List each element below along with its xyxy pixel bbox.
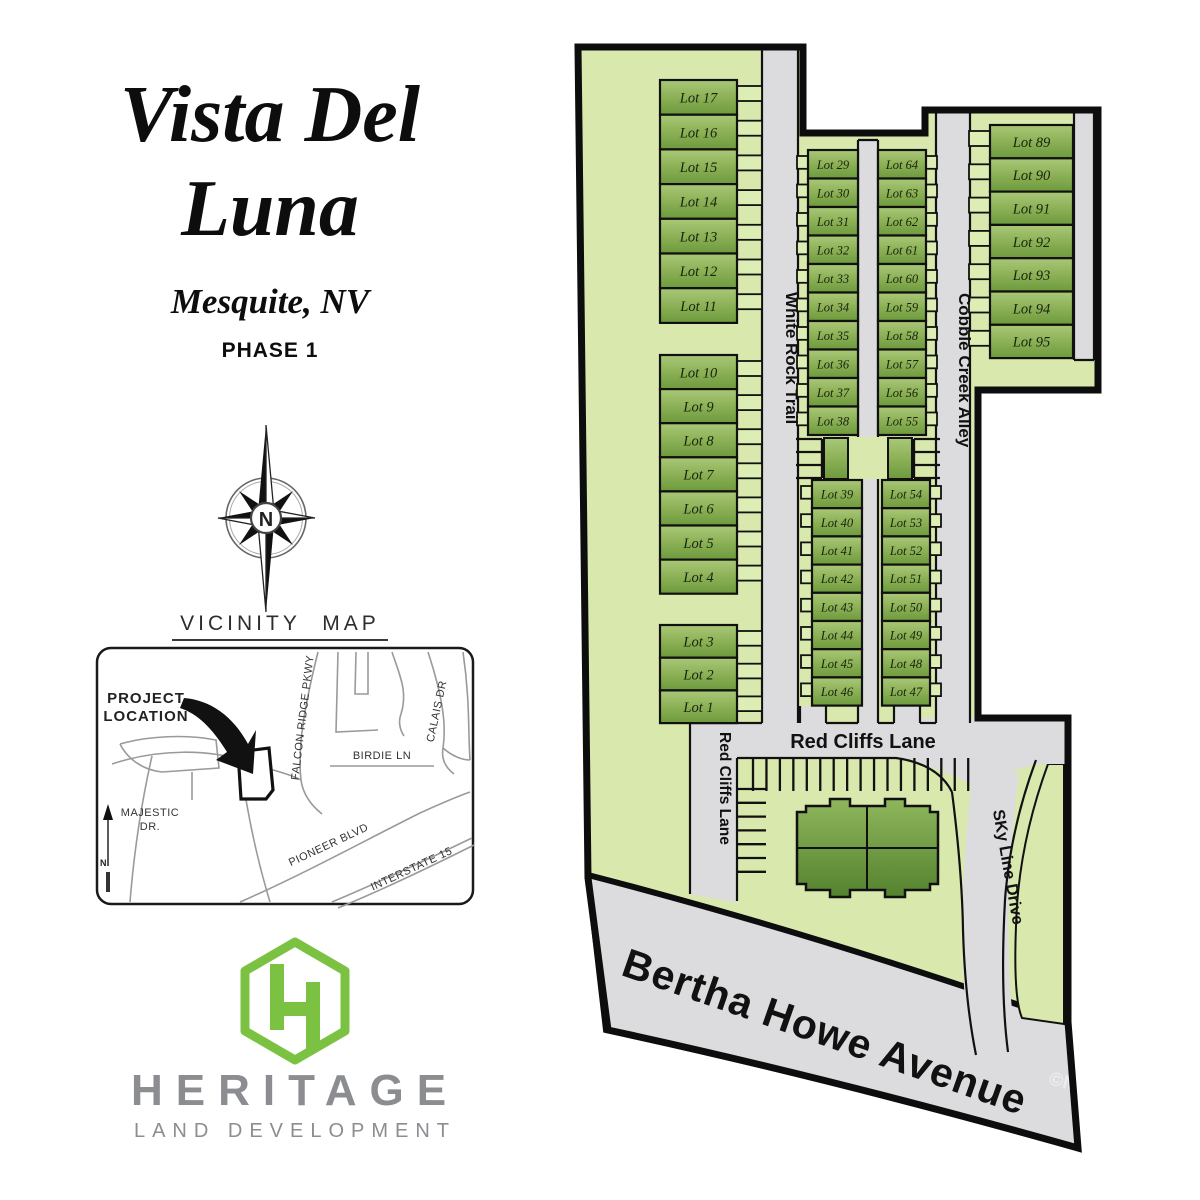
lot-17-driveway (737, 86, 762, 101)
lot-7-label: Lot 7 (682, 468, 714, 484)
vicinity-label-majestic-1: MAJESTIC (121, 807, 179, 819)
lot-58-label: Lot 58 (885, 329, 919, 343)
lot-12-driveway (737, 260, 762, 275)
lot-90-label: Lot 90 (1012, 168, 1051, 184)
lot-62-label: Lot 62 (885, 215, 918, 229)
lot-92-label: Lot 92 (1012, 235, 1050, 251)
lot-32-label: Lot 32 (816, 243, 849, 257)
page: Vista Del Luna Mesquite, NV PHASE 1 VICI… (0, 0, 1200, 1200)
stub-alley-a (800, 706, 826, 724)
lot-13-label: Lot 13 (679, 229, 717, 245)
lot-1-label: Lot 1 (682, 700, 713, 716)
lot-11-label: Lot 11 (679, 299, 716, 315)
lot-95-label: Lot 95 (1012, 335, 1050, 351)
site-plan: Lot 17Lot 16Lot 15Lot 14Lot 13Lot 12Lot … (578, 47, 1098, 1148)
lot-2-label: Lot 2 (682, 667, 713, 683)
lot-61-label: Lot 61 (885, 243, 918, 257)
lot-17-label: Lot 17 (679, 91, 718, 107)
lot-4-label: Lot 4 (682, 570, 713, 586)
lot-3-driveway (737, 631, 762, 646)
lot-11-driveway (737, 294, 762, 309)
lot-31-label: Lot 31 (816, 215, 849, 229)
lot-51-label: Lot 51 (889, 572, 922, 586)
clubhouse-building (797, 799, 938, 897)
logo-hexagon-icon (245, 942, 345, 1060)
lot-10-driveway (737, 361, 762, 376)
stub-alley-b (894, 706, 920, 724)
lot-48-label: Lot 48 (889, 657, 923, 671)
street-label-red-cliffs-lane-v: Red Cliffs Lane (716, 732, 733, 845)
alley-center-upper (858, 140, 878, 437)
gap-connector-a (824, 438, 848, 479)
lot-7-driveway (737, 463, 762, 478)
lot-53-label: Lot 53 (889, 516, 922, 530)
plat-graphic: Lot 17Lot 16Lot 15Lot 14Lot 13Lot 12Lot … (0, 0, 1200, 1200)
lot-52-label: Lot 52 (889, 544, 922, 558)
vicinity-label-birdie-ln: BIRDIE LN (353, 750, 411, 762)
lot-33-label: Lot 33 (816, 272, 849, 286)
lot-57-label: Lot 57 (885, 357, 919, 371)
lot-38-label: Lot 38 (816, 414, 850, 428)
lot-46-label: Lot 46 (820, 685, 854, 699)
lot-15-driveway (737, 155, 762, 170)
lot-1-driveway (737, 696, 762, 711)
lot-8-driveway (737, 429, 762, 444)
project-location-label-2: LOCATION (103, 708, 188, 725)
lot-4-driveway (737, 566, 762, 581)
lot-43-label: Lot 43 (820, 600, 853, 614)
lot-89-label: Lot 89 (1012, 135, 1051, 151)
lot-41-label: Lot 41 (820, 544, 853, 558)
lot-60-label: Lot 60 (885, 272, 919, 286)
lot-91-label: Lot 91 (1012, 202, 1050, 218)
lot-3-label: Lot 3 (682, 635, 713, 651)
lot-42-label: Lot 42 (820, 572, 853, 586)
lot-8-label: Lot 8 (682, 434, 714, 450)
lot-59-label: Lot 59 (885, 300, 919, 314)
gap-connector-b (888, 438, 912, 479)
lot-14-label: Lot 14 (679, 195, 717, 211)
lot-56-label: Lot 56 (885, 386, 919, 400)
lot-9-driveway (737, 395, 762, 410)
lot-89-driveway (969, 131, 991, 146)
lot-2-driveway (737, 664, 762, 679)
lot-90-driveway (969, 164, 991, 179)
street-label-red-cliffs-lane-h: Red Cliffs Lane (790, 731, 936, 753)
lot-39-label: Lot 39 (820, 488, 854, 502)
lot-29-label: Lot 29 (816, 158, 850, 172)
project-location-label-1: PROJECT (107, 690, 185, 707)
vicinity-map: PROJECT LOCATION FALCON RIDGE PKWY BIRDI… (97, 648, 474, 908)
vicinity-label-majestic-2: DR. (140, 821, 160, 833)
lot-49-label: Lot 49 (889, 629, 923, 643)
lot-12-label: Lot 12 (679, 264, 717, 280)
lot-6-label: Lot 6 (682, 502, 714, 518)
lot-55-label: Lot 55 (885, 414, 918, 428)
lot-35-label: Lot 35 (816, 329, 849, 343)
lot-36-label: Lot 36 (816, 357, 850, 371)
lot-47-label: Lot 47 (889, 685, 923, 699)
lot-5-label: Lot 5 (682, 536, 713, 552)
road-east-stub (1074, 112, 1094, 360)
lot-34-label: Lot 34 (816, 300, 849, 314)
lot-16-label: Lot 16 (679, 125, 718, 141)
lot-94-label: Lot 94 (1012, 301, 1050, 317)
lot-6-driveway (737, 497, 762, 512)
lot-40-label: Lot 40 (820, 516, 854, 530)
lot-10-label: Lot 10 (679, 365, 718, 381)
vicinity-north-letter: N (100, 858, 107, 868)
lot-14-driveway (737, 190, 762, 205)
lot-92-driveway (969, 231, 991, 246)
lot-37-label: Lot 37 (816, 386, 850, 400)
lot-16-driveway (737, 121, 762, 136)
lot-91-driveway (969, 198, 991, 213)
lot-50-label: Lot 50 (889, 600, 923, 614)
street-label-white-rock-trail: White Rock Trail (782, 292, 801, 424)
compass-rose: N (218, 425, 315, 612)
lot-30-label: Lot 30 (816, 186, 850, 200)
lot-15-label: Lot 15 (679, 160, 717, 176)
lot-44-label: Lot 44 (820, 629, 853, 643)
lot-13-driveway (737, 225, 762, 240)
lot-93-label: Lot 93 (1012, 268, 1050, 284)
lot-5-driveway (737, 532, 762, 547)
lot-45-label: Lot 45 (820, 657, 853, 671)
lot-54-label: Lot 54 (889, 488, 922, 502)
lot-64-label: Lot 64 (885, 158, 918, 172)
lot-93-driveway (969, 264, 991, 279)
compass-north-letter: N (259, 509, 273, 531)
street-label-cobble-creek-alley: Cobble Creek Alley (955, 293, 974, 448)
lot-9-label: Lot 9 (682, 399, 714, 415)
lot-63-label: Lot 63 (885, 186, 918, 200)
